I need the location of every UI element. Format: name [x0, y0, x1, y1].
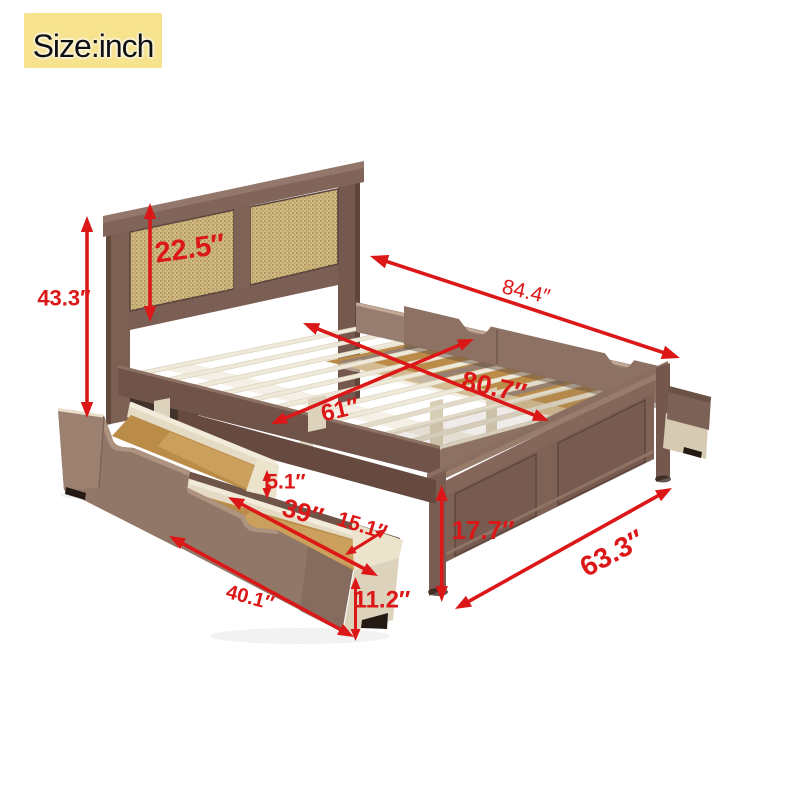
svg-text:5.1″: 5.1″ — [266, 471, 305, 494]
svg-text:43.3″: 43.3″ — [37, 286, 91, 311]
svg-text:11.2″: 11.2″ — [354, 587, 411, 614]
svg-text:17.7″: 17.7″ — [451, 515, 514, 545]
